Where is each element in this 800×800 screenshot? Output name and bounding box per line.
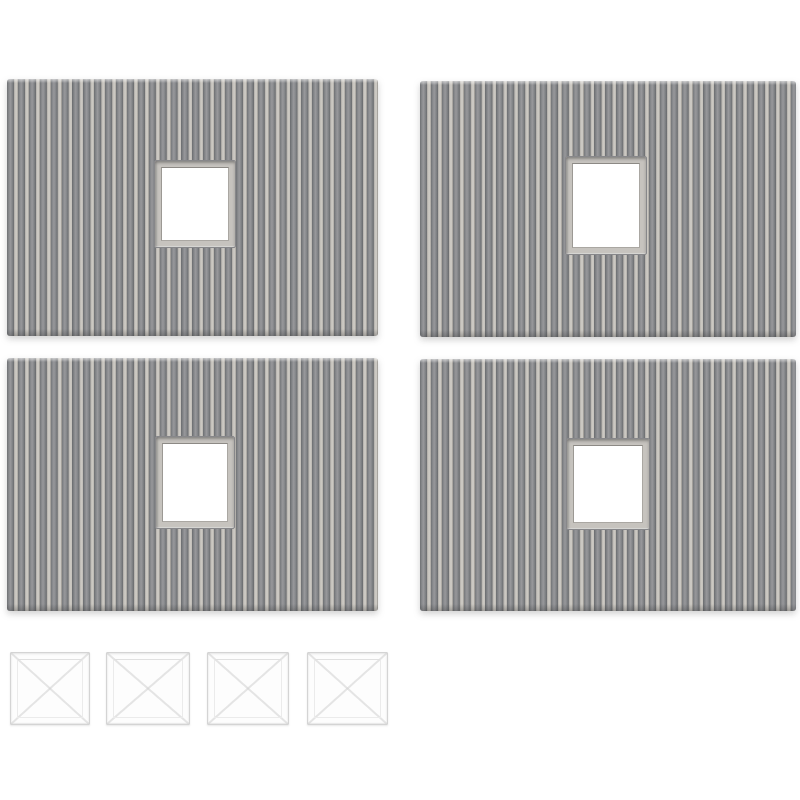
window-frame [154,160,236,248]
clear-glazing-square-4 [307,652,388,725]
corrugated-panel-top-right [420,81,796,337]
clear-glazing-square-2 [106,652,190,725]
window-frame [565,156,647,255]
glazing-facet-lines [11,653,89,724]
window-opening [162,443,228,522]
glazing-inner-edge [113,659,183,718]
glazing-facet-lines [308,653,387,724]
glazing-inner-edge [17,659,83,718]
glazing-inner-edge [314,659,381,718]
product-photo [0,0,800,800]
window-opening [161,167,229,241]
clear-glazing-square-3 [207,652,289,725]
glazing-facet-lines [107,653,189,724]
corrugated-panel-bottom-right [420,359,796,611]
glazing-facet-lines [208,653,288,724]
window-frame [155,436,235,529]
corrugated-panel-bottom-left [7,358,378,611]
window-opening [572,163,640,248]
clear-glazing-square-1 [10,652,90,725]
corrugated-panel-top-left [7,79,378,336]
window-frame [566,438,650,530]
window-opening [573,445,643,523]
glazing-inner-edge [214,659,282,718]
